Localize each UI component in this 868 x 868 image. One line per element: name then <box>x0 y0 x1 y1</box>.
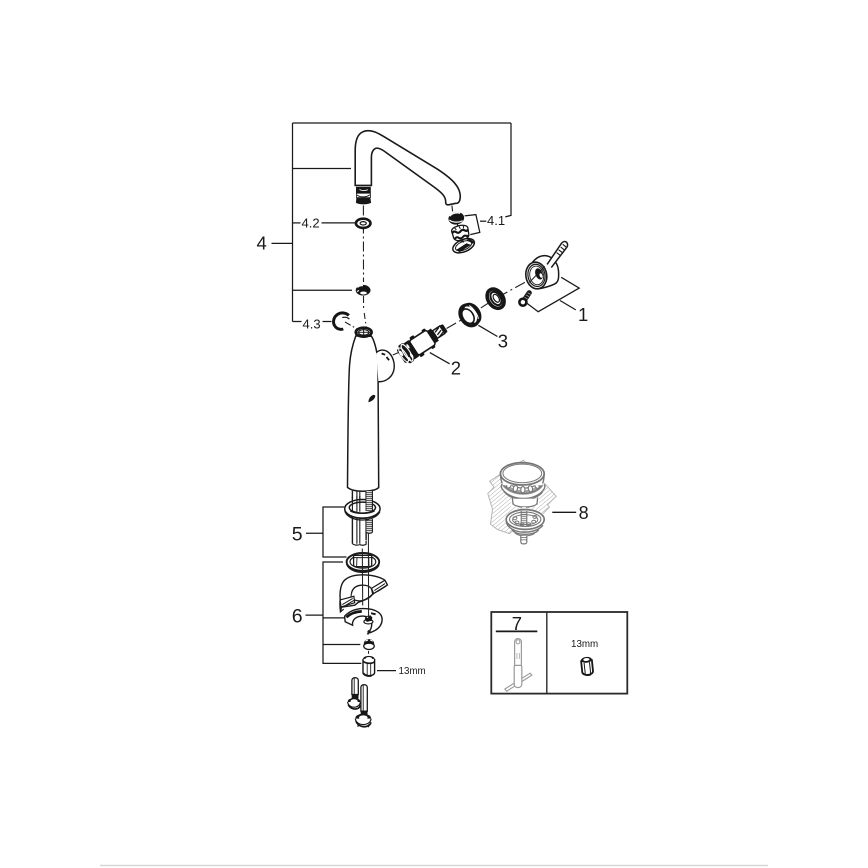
svg-text:2: 2 <box>451 358 461 379</box>
svg-text:8: 8 <box>579 503 589 523</box>
svg-text:4.3: 4.3 <box>303 316 321 331</box>
svg-text:5: 5 <box>292 523 303 545</box>
svg-text:1: 1 <box>578 304 588 325</box>
svg-text:4: 4 <box>257 233 267 254</box>
svg-text:6: 6 <box>292 606 303 628</box>
svg-text:4.2: 4.2 <box>302 215 320 230</box>
svg-text:3: 3 <box>498 331 508 352</box>
svg-text:13mm: 13mm <box>571 639 598 650</box>
svg-text:13mm: 13mm <box>399 666 426 677</box>
svg-text:4.1: 4.1 <box>487 213 505 228</box>
